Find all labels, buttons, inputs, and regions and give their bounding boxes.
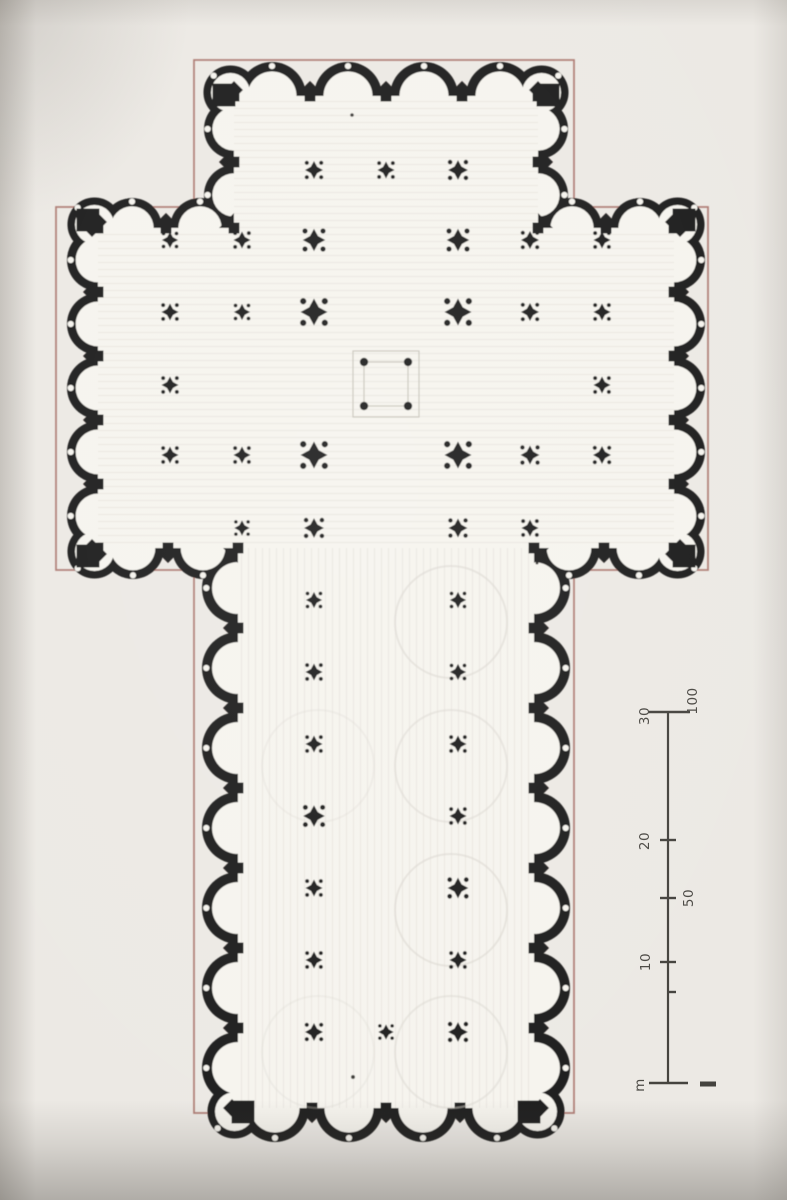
cathedral-floor-plan-svg: 30100205010m	[0, 0, 787, 1200]
photo-shading-right	[753, 0, 787, 1200]
photo-shading-corner	[0, 0, 190, 220]
photo-shading-bottom	[0, 1100, 787, 1200]
scanned-plan-photo: 30100205010m	[0, 0, 787, 1200]
